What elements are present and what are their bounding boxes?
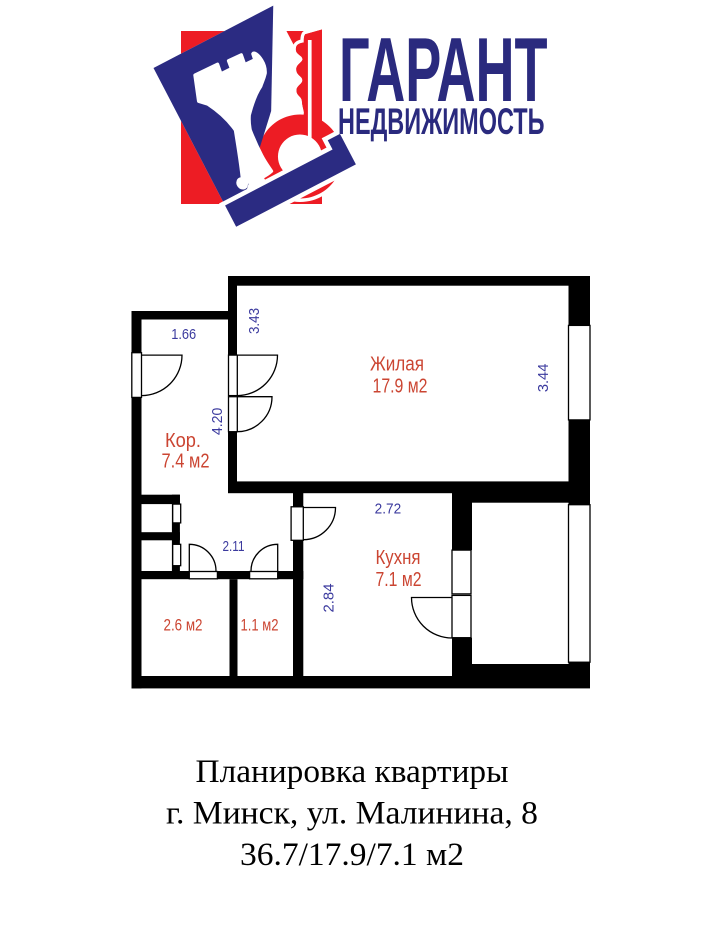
svg-text:7.1 м2: 7.1 м2 — [376, 569, 422, 591]
svg-text:4.20: 4.20 — [209, 408, 226, 436]
svg-text:Жилая: Жилая — [370, 354, 424, 376]
svg-text:Кор.: Кор. — [165, 430, 201, 452]
svg-text:7.4 м2: 7.4 м2 — [162, 451, 210, 473]
svg-text:г. Минск, ул. Малинина, 8: г. Минск, ул. Малинина, 8 — [166, 796, 538, 832]
svg-text:2.6 м2: 2.6 м2 — [164, 616, 203, 635]
svg-text:36.7/17.9/7.1 м2: 36.7/17.9/7.1 м2 — [240, 837, 464, 873]
svg-text:2.84: 2.84 — [321, 584, 338, 613]
svg-text:3.43: 3.43 — [246, 308, 263, 334]
svg-text:Кухня: Кухня — [376, 547, 421, 569]
svg-text:2.11: 2.11 — [223, 538, 245, 555]
svg-text:3.44: 3.44 — [535, 364, 552, 393]
svg-text:Планировка квартиры: Планировка квартиры — [196, 754, 509, 790]
svg-text:2.72: 2.72 — [375, 501, 402, 518]
svg-text:НЕДВИЖИМОСТЬ: НЕДВИЖИМОСТЬ — [338, 101, 545, 142]
svg-text:1.66: 1.66 — [171, 326, 196, 343]
svg-text:1.1 м2: 1.1 м2 — [241, 616, 279, 635]
svg-text:17.9 м2: 17.9 м2 — [373, 376, 428, 398]
